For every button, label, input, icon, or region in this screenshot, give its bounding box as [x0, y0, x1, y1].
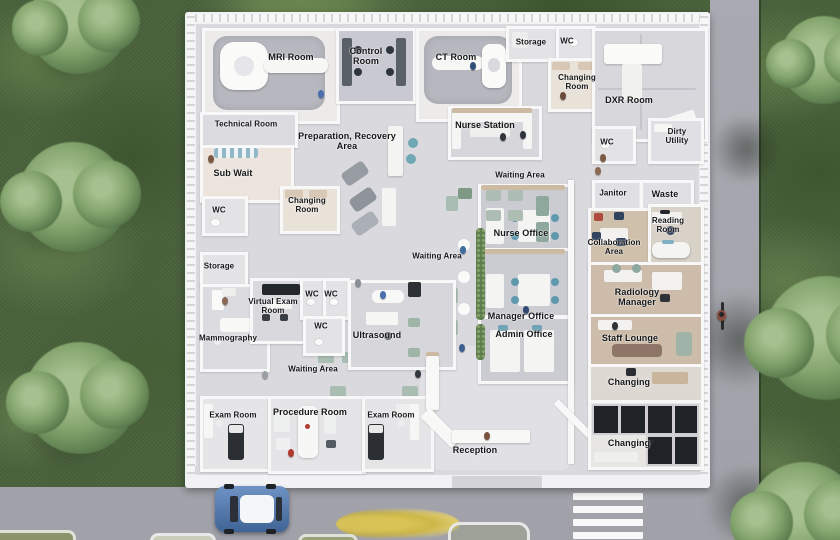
room-label-reception: Reception [453, 445, 497, 455]
room-label-wc-right: WC [600, 139, 614, 148]
room-label-ct-room: CT Room [436, 52, 477, 62]
room-label-changing-room-top: Changing Room [558, 74, 596, 92]
room-label-technical-room: Technical Room [215, 121, 278, 130]
room-label-waste: Waste [652, 189, 679, 199]
room-label-reading-room: Reading Room [652, 217, 684, 235]
room-label-preparation-recovery-area: Preparation, Recovery Area [298, 131, 396, 151]
room-labels-layer: MRI RoomControl RoomCT RoomStorageWCChan… [0, 0, 840, 540]
room-label-exam-room-1: Exam Room [209, 412, 256, 421]
floorplan-scene: MRI RoomControl RoomCT RoomStorageWCChan… [0, 0, 840, 540]
room-label-control-room: Control Room [350, 46, 383, 66]
room-label-radiology-manager: Radiology Manager [615, 287, 659, 307]
room-label-waiting-area-bottom: Waiting Area [288, 366, 338, 375]
room-label-changing-room-left: Changing Room [288, 197, 326, 215]
room-label-staff-lounge: Staff Lounge [602, 333, 658, 343]
room-label-sub-wait: Sub Wait [214, 168, 253, 178]
room-label-dxr-room: DXR Room [605, 95, 653, 105]
room-label-wc-top: WC [560, 38, 574, 47]
room-label-storage-left: Storage [204, 263, 235, 272]
room-label-nurse-station: Nurse Station [455, 120, 515, 130]
room-label-waiting-area-top: Waiting Area [495, 172, 545, 181]
room-label-wc-left: WC [212, 207, 226, 216]
room-label-waiting-area-mid: Waiting Area [412, 253, 462, 262]
room-label-manager-office: Manager Office [488, 311, 554, 321]
room-label-wc-b: WC [324, 291, 338, 300]
room-label-nurse-office: Nurse Office [494, 228, 549, 238]
room-label-janitor: Janitor [599, 190, 626, 199]
room-label-ultrasound: Ultrasound [353, 330, 402, 340]
room-label-admin-office: Admin Office [495, 329, 552, 339]
room-label-virtual-exam-room: Virtual Exam Room [248, 298, 298, 316]
room-label-mammography: Mammography [199, 335, 257, 344]
room-label-procedure-room: Procedure Room [273, 407, 347, 417]
room-label-storage-top: Storage [516, 39, 547, 48]
room-label-changing-2: Changing [608, 438, 650, 448]
room-label-wc-a: WC [305, 291, 319, 300]
room-label-collaboration-area: Collaboration Area [588, 239, 641, 257]
room-label-mri-room: MRI Room [268, 52, 313, 62]
room-label-exam-room-2: Exam Room [367, 412, 414, 421]
room-label-dirty-utility: Dirty Utility [666, 128, 689, 146]
room-label-changing-1: Changing [608, 377, 650, 387]
room-label-wc-c: WC [314, 323, 328, 332]
